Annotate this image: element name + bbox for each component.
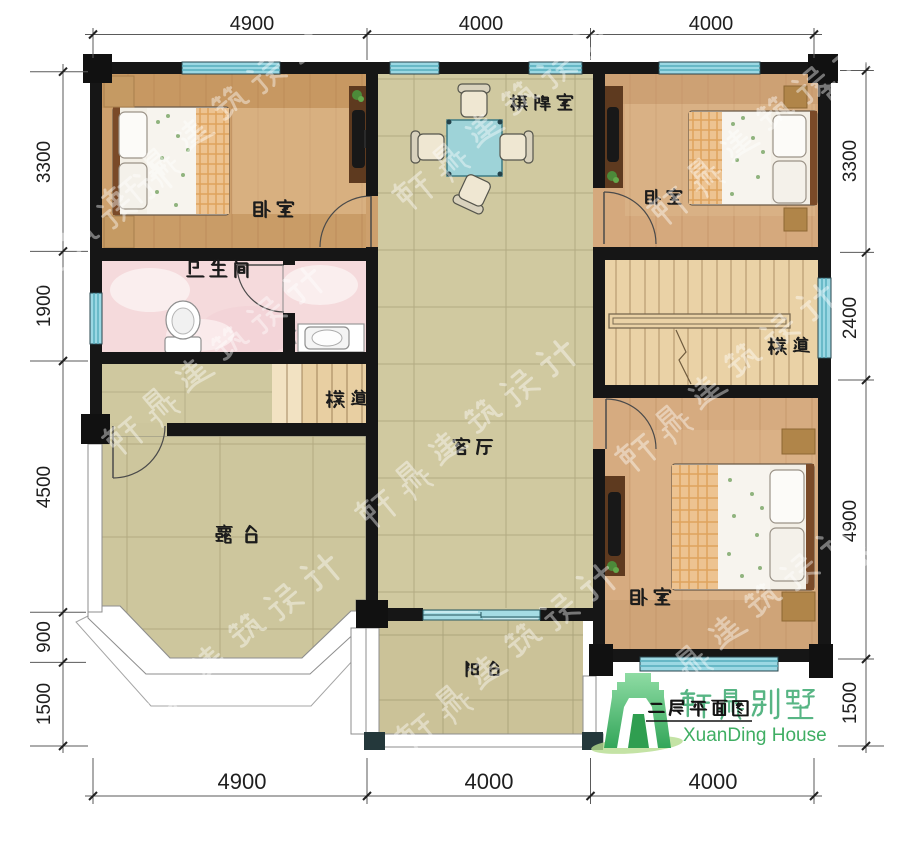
svg-text:4900: 4900	[218, 769, 267, 794]
svg-text:4000: 4000	[459, 13, 504, 35]
svg-text:1500: 1500	[34, 683, 55, 725]
svg-text:3300: 3300	[840, 140, 861, 182]
svg-text:XuanDing House: XuanDing House	[683, 725, 827, 746]
svg-text:3300: 3300	[34, 141, 55, 183]
svg-text:4500: 4500	[34, 466, 55, 508]
svg-text:2400: 2400	[840, 297, 861, 339]
svg-text:4900: 4900	[230, 13, 275, 35]
svg-text:4000: 4000	[689, 769, 738, 794]
svg-text:4000: 4000	[465, 769, 514, 794]
svg-text:1500: 1500	[840, 682, 861, 724]
svg-text:900: 900	[34, 621, 55, 653]
svg-text:4000: 4000	[689, 13, 734, 35]
svg-text:1900: 1900	[34, 285, 55, 327]
